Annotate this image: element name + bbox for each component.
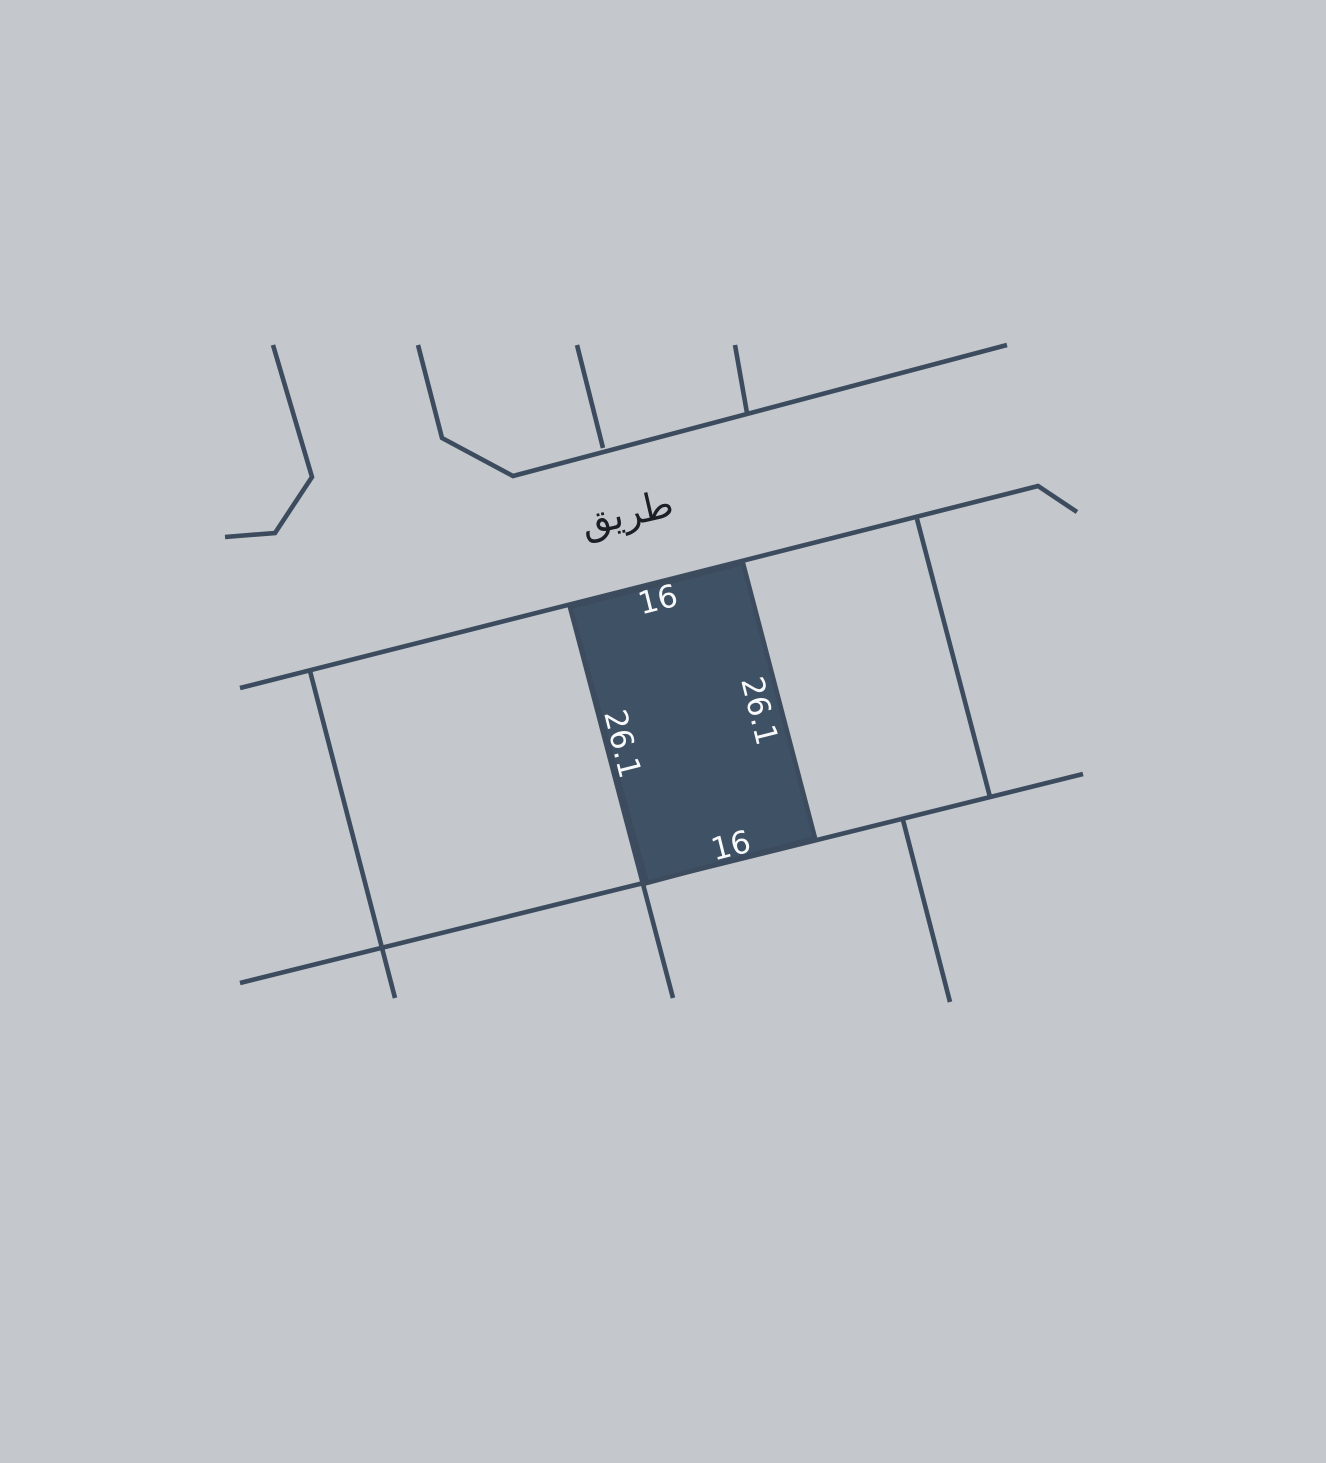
map-canvas: طريق1626.11626.1	[0, 0, 1326, 1463]
cadastral-map: طريق1626.11626.1	[0, 0, 1326, 1463]
